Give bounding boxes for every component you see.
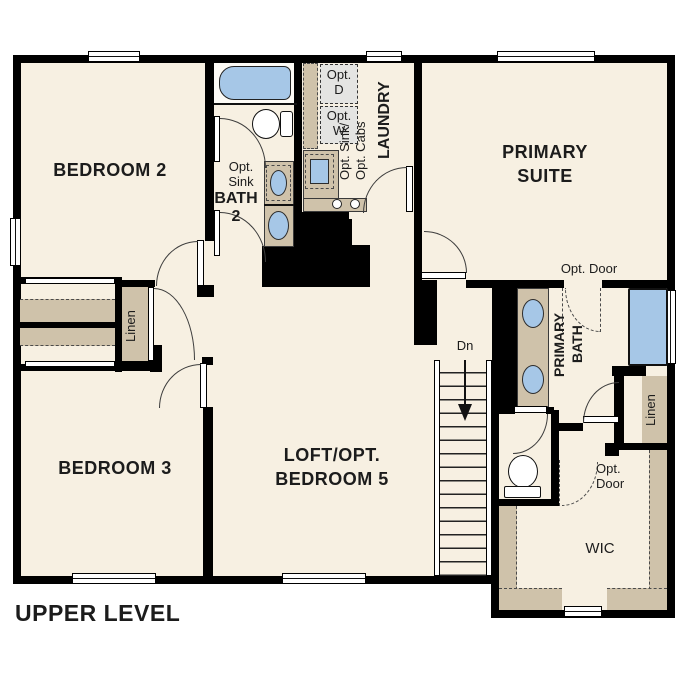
primary-bath-label: BATH (569, 292, 586, 397)
linen-hall-label: Linen (124, 295, 144, 357)
door-leaf (514, 406, 547, 413)
wic-shelf (607, 588, 667, 610)
bedroom3-closet-slider-door (25, 361, 115, 367)
chase-void (302, 219, 352, 287)
wall (602, 280, 667, 288)
bath2-label: BATH 2 (210, 190, 262, 225)
wall (115, 280, 155, 287)
stair-rail (486, 360, 492, 576)
window (72, 573, 156, 584)
primary-bath-label: PRIMARY (551, 292, 568, 397)
opt-door-wic-label: Opt. Door (596, 462, 646, 492)
wall (466, 280, 564, 288)
wall (115, 277, 122, 372)
door-leaf (200, 363, 207, 408)
opt-sink-label: Opt. Sink (220, 160, 262, 190)
wic-shelf (649, 450, 667, 610)
floor-plan: Linen Opt. Sink BATH 2 Opt. D Opt. W (0, 0, 687, 687)
window (282, 573, 366, 584)
sink-icon (522, 365, 544, 394)
wall-line (214, 103, 297, 105)
door-leaf (421, 272, 466, 279)
wall (492, 499, 559, 506)
wall (499, 407, 515, 414)
plan-title: UPPER LEVEL (15, 600, 275, 626)
wic-label: WIC (560, 540, 640, 557)
toilet-tank-icon (280, 111, 293, 137)
stair-treads (440, 360, 486, 576)
door-leaf (197, 240, 204, 286)
opt-door-label: Opt. Door (548, 262, 630, 277)
primary-suite-label: PRIMARY SUITE (455, 140, 635, 189)
chase-void (262, 246, 305, 287)
wall (624, 443, 667, 450)
window (497, 51, 595, 62)
counter-divider (264, 204, 294, 206)
down-arrow-head-icon (458, 404, 472, 421)
wic-shelf (499, 588, 562, 610)
bedroom3-label: BEDROOM 3 (25, 458, 205, 479)
toilet-icon (252, 109, 280, 139)
wall (491, 576, 499, 618)
wall (414, 55, 422, 215)
sink-icon (268, 211, 289, 240)
laundry-label: LAUNDRY (376, 68, 396, 173)
wall (551, 410, 559, 506)
bathtub-icon (219, 66, 291, 100)
bedroom2-closet-shelf (20, 299, 115, 322)
window (88, 51, 140, 62)
chase-void (352, 245, 370, 287)
wall (294, 55, 302, 250)
door-leaf (406, 166, 413, 212)
window (366, 51, 402, 62)
window (10, 218, 21, 266)
wall (203, 407, 213, 576)
bedroom2-closet-slider-door (25, 278, 115, 284)
optional-cabinets (303, 63, 318, 149)
sink-icon (522, 299, 544, 328)
loft-label: LOFT/OPT. BEDROOM 5 (228, 443, 436, 492)
wall (492, 288, 499, 576)
wall (297, 212, 349, 219)
bedroom3-closet-shelf (20, 328, 115, 346)
stairs-down-label: Dn (448, 339, 482, 354)
laundry-opt-label: Opt. Sink/ (338, 92, 353, 210)
wall (414, 280, 437, 345)
wall (559, 423, 583, 431)
wall (197, 285, 214, 297)
window (564, 606, 602, 617)
bedroom2-label: BEDROOM 2 (20, 160, 200, 181)
toilet-icon (508, 455, 538, 488)
optional-door-leaf (600, 288, 603, 332)
toilet-tank-icon (504, 486, 541, 498)
shower-icon (628, 288, 668, 366)
sink-icon (270, 170, 287, 196)
down-arrow-icon (464, 360, 466, 406)
stair-chase-void (497, 288, 517, 412)
sink-icon (310, 159, 329, 184)
wall (605, 443, 619, 456)
linen-primary-label: Linen (644, 380, 664, 440)
